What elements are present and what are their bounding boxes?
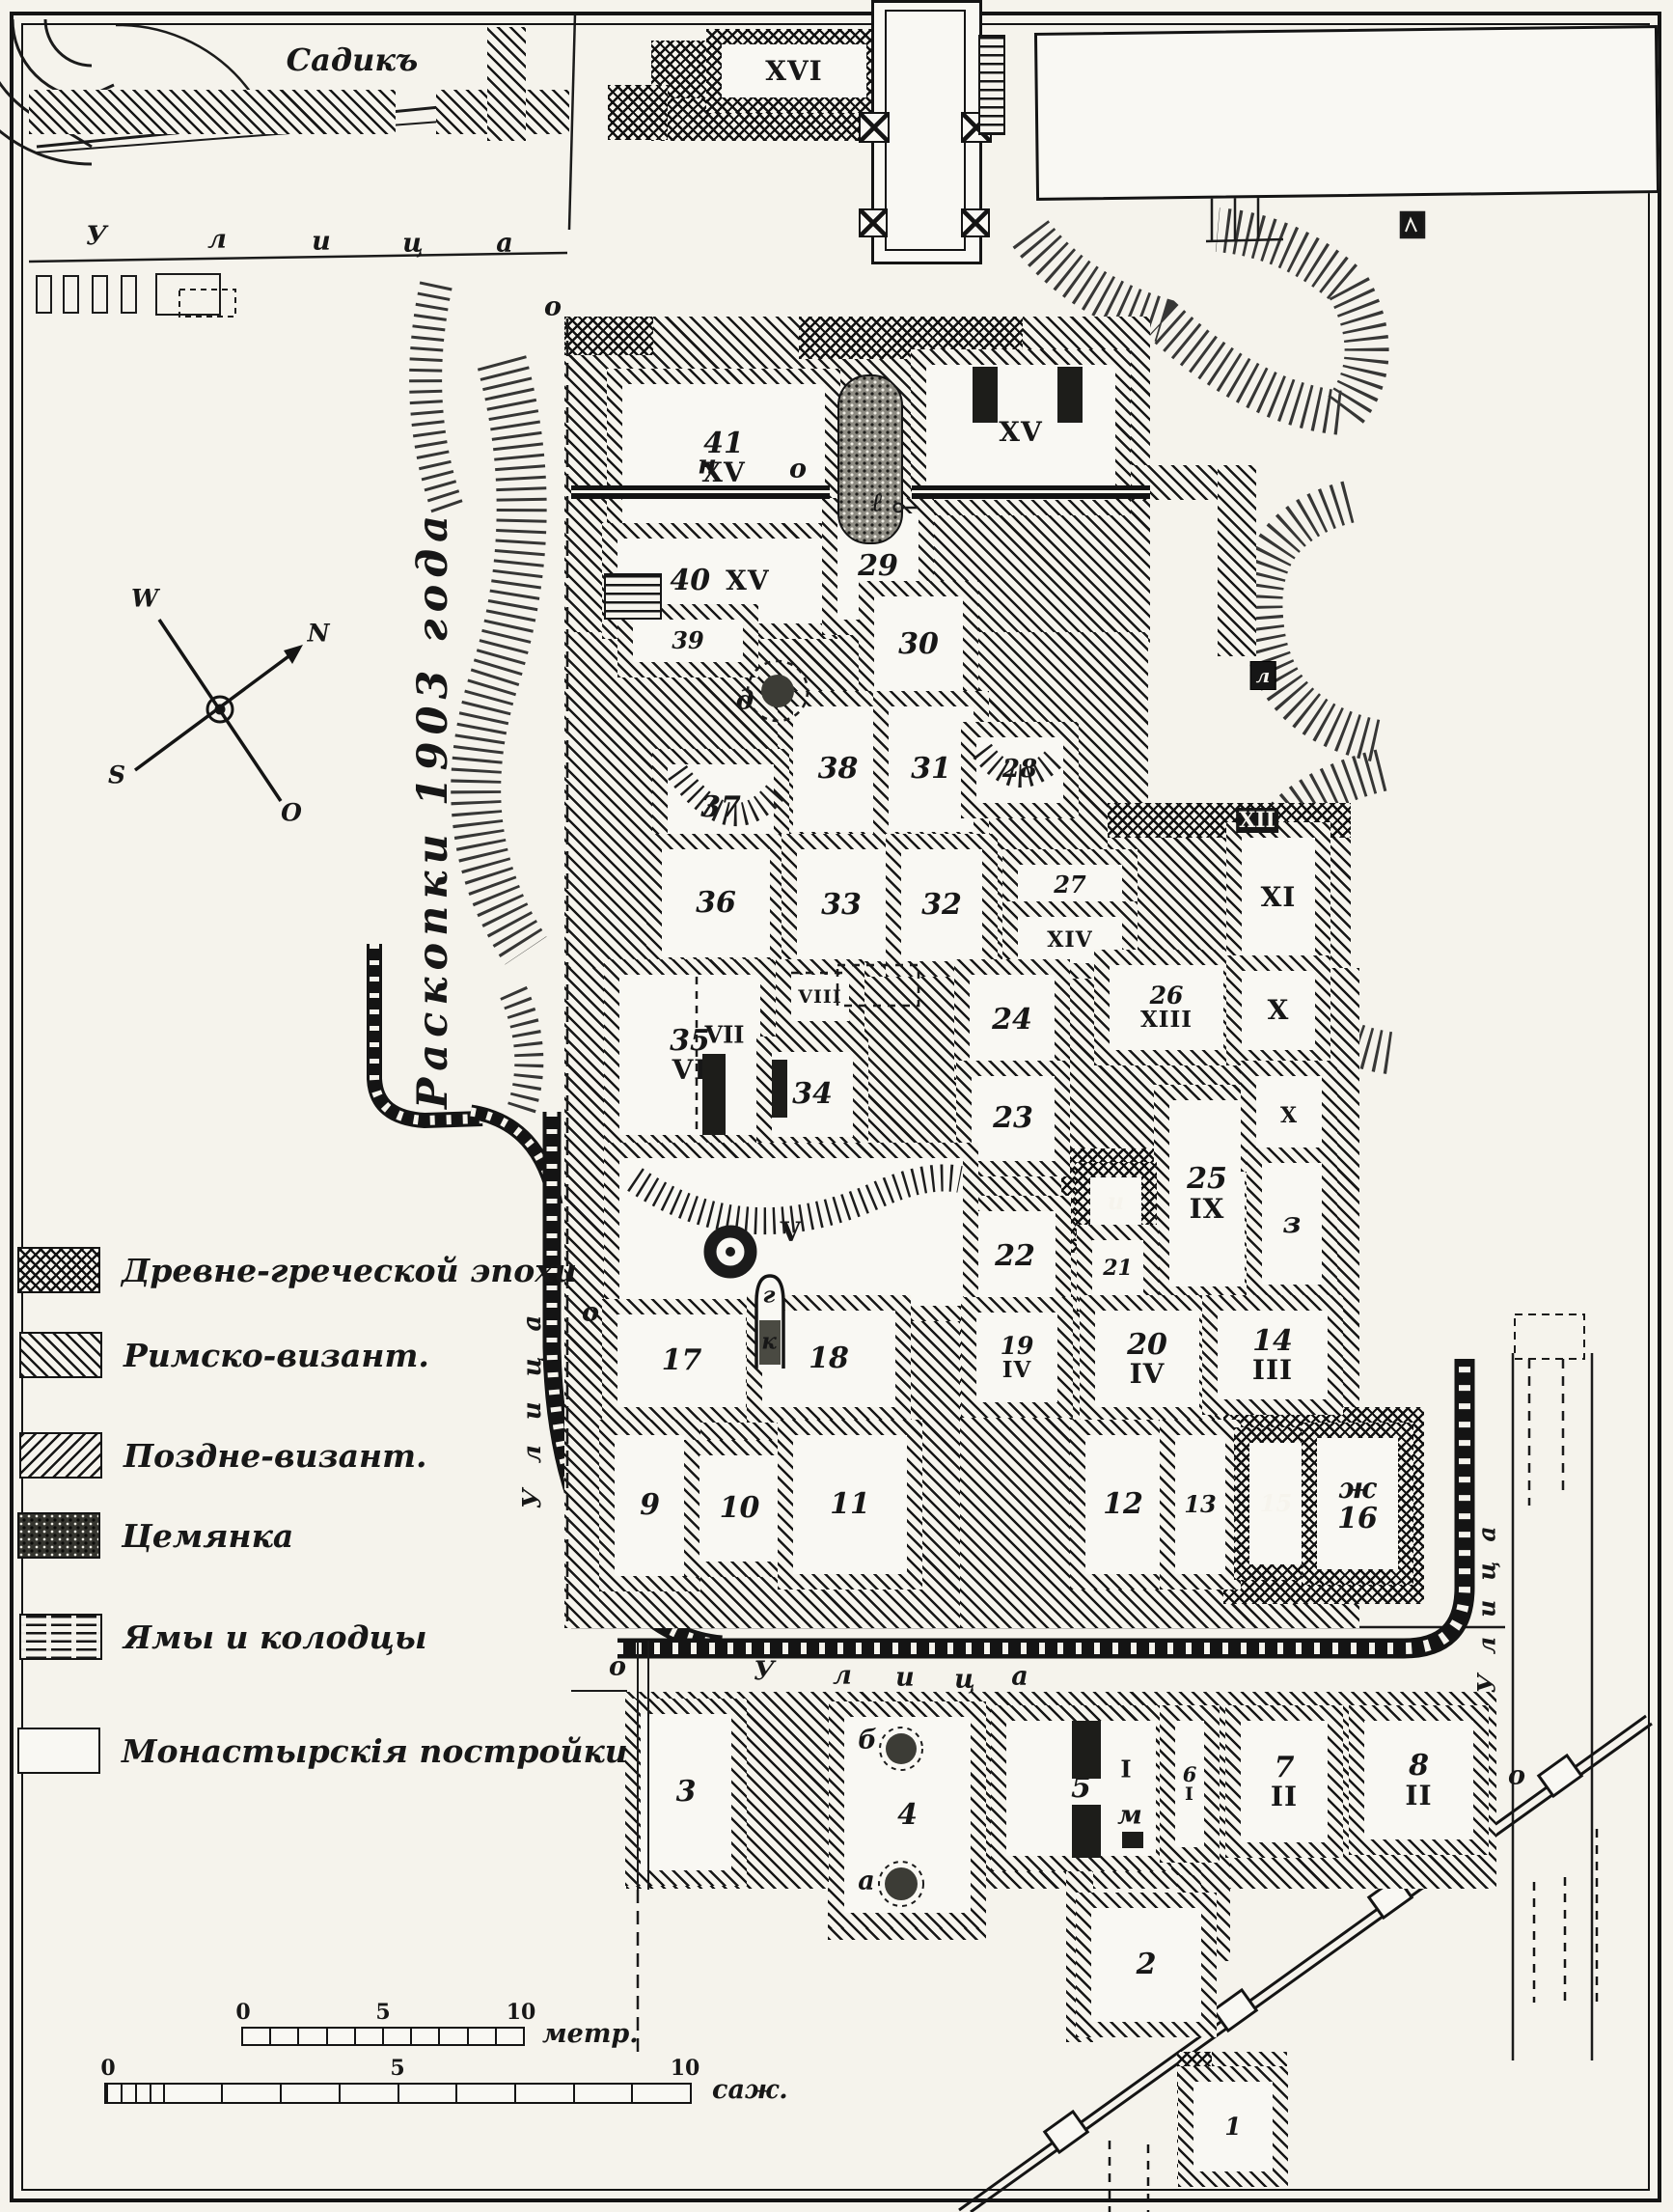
marker-а: а	[858, 1866, 875, 1896]
marker-о: о	[1508, 1761, 1525, 1791]
marker-б: б	[858, 1726, 877, 1756]
marker-о: о	[609, 1652, 626, 1682]
marker-м: м	[1117, 1801, 1142, 1831]
marker-к: к	[761, 1329, 777, 1355]
marker-л: л	[1250, 661, 1276, 690]
marker-I: I	[1120, 1756, 1131, 1783]
marker-о: о	[544, 292, 562, 322]
marker-г: г	[763, 1283, 776, 1309]
marker-о: о	[582, 1298, 599, 1328]
marker-д: д	[736, 686, 754, 716]
marker-о: о	[789, 455, 807, 484]
marker-н: н	[698, 451, 717, 481]
marker-XII: XII	[1236, 808, 1278, 833]
excavation-plan-1903: XVI41XVXV40XV2939303831283736333227XIV26…	[0, 0, 1673, 2212]
marker-VII: VII	[704, 1021, 744, 1049]
marker-ℓ: ℓ	[871, 488, 883, 518]
letter-markers: оноℓдVIIогкXIIлобаIмо	[0, 0, 1673, 2212]
